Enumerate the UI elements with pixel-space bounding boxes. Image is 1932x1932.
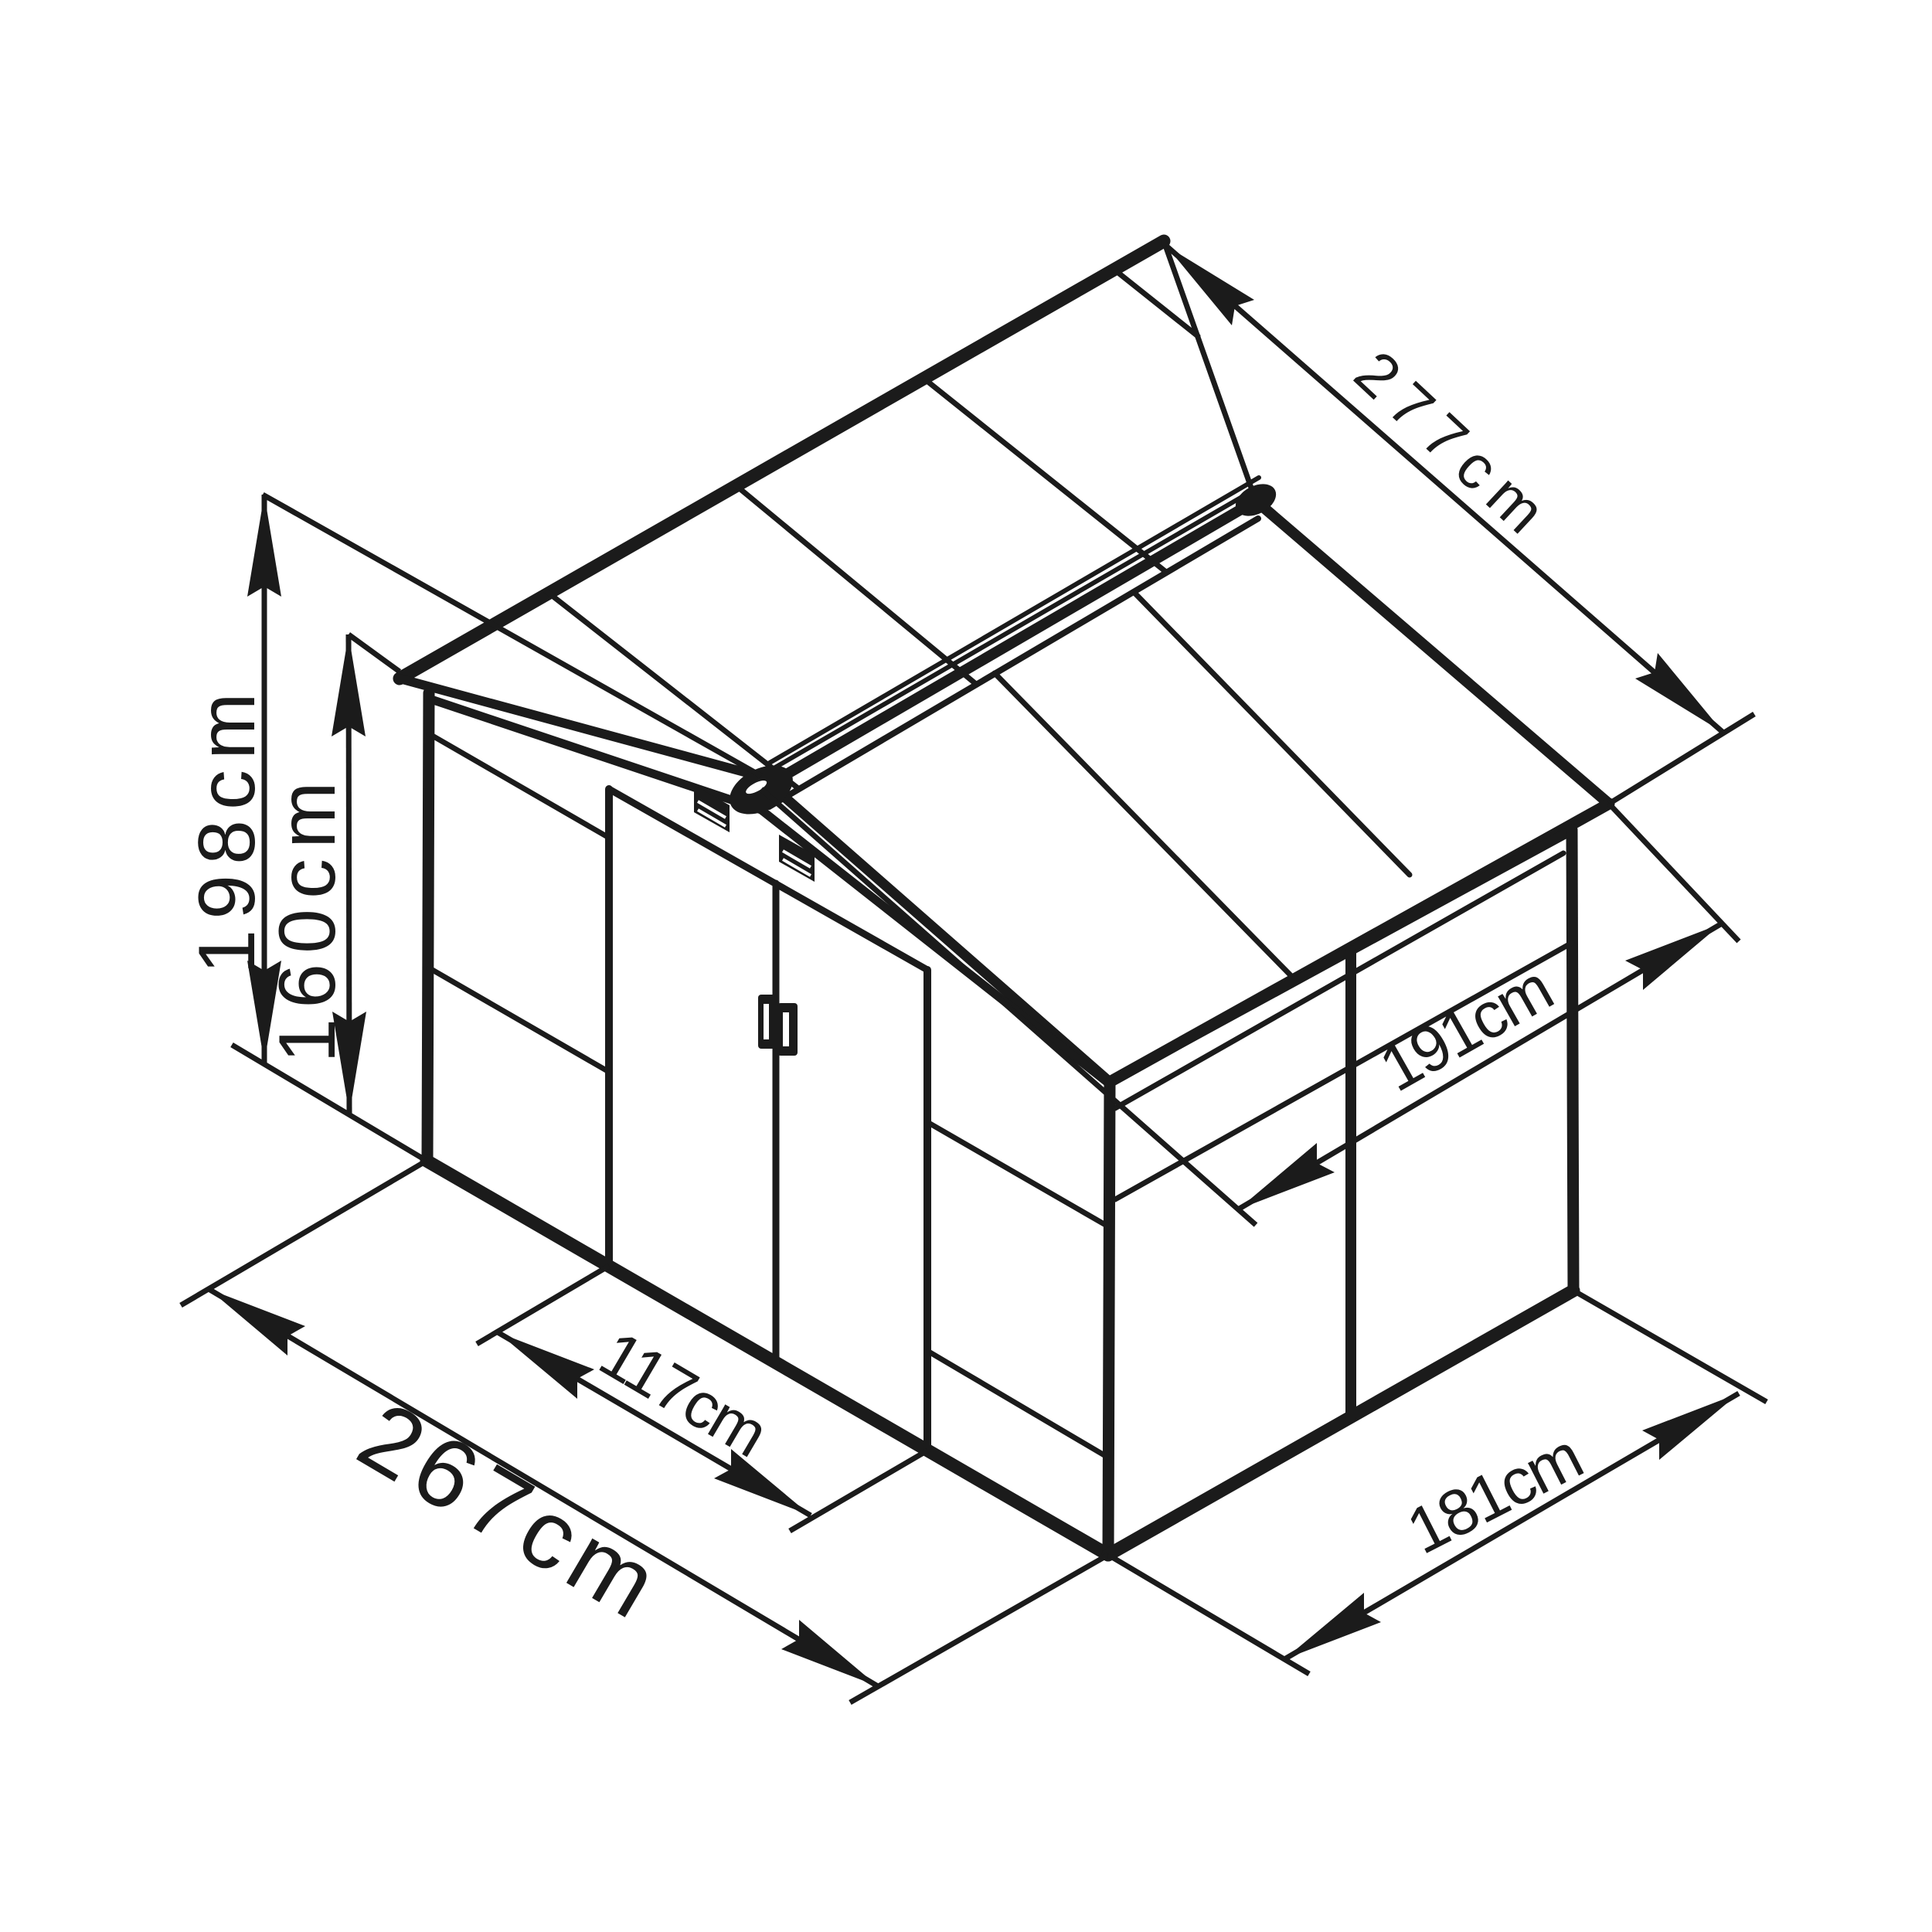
svg-text:160cm: 160cm	[263, 771, 352, 1063]
svg-text:198cm: 198cm	[182, 682, 272, 974]
